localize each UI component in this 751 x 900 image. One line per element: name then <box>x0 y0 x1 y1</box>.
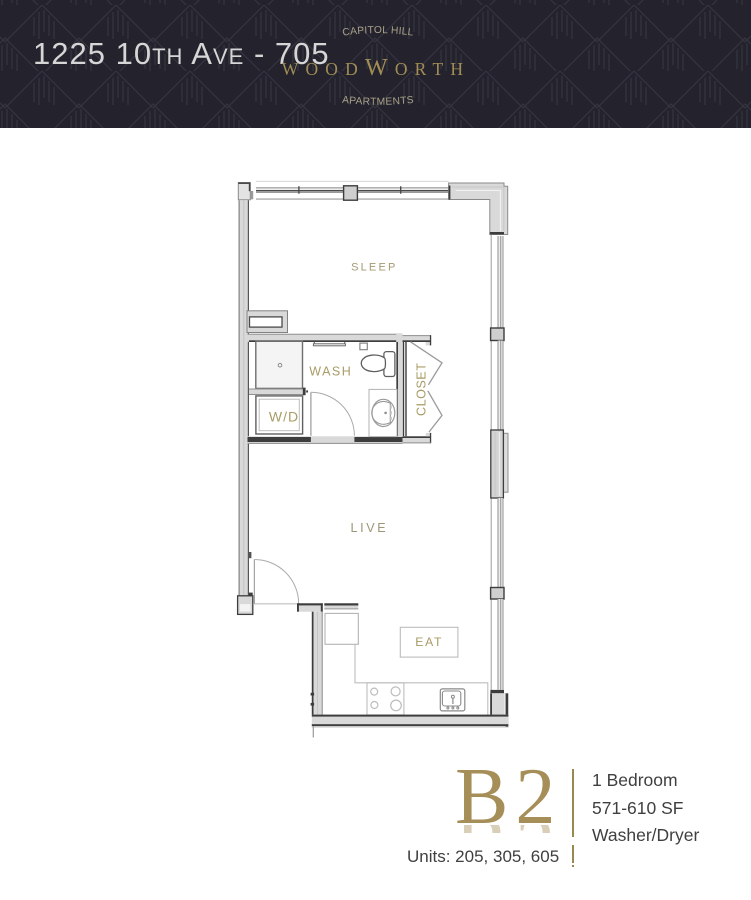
svg-text:W/D: W/D <box>269 408 299 424</box>
svg-text:LIVE: LIVE <box>351 521 389 535</box>
svg-text:SLEEP: SLEEP <box>351 261 397 273</box>
svg-text:WASH: WASH <box>309 364 352 378</box>
svg-text:CLOSET: CLOSET <box>414 363 428 416</box>
svg-text:EAT: EAT <box>415 635 443 649</box>
